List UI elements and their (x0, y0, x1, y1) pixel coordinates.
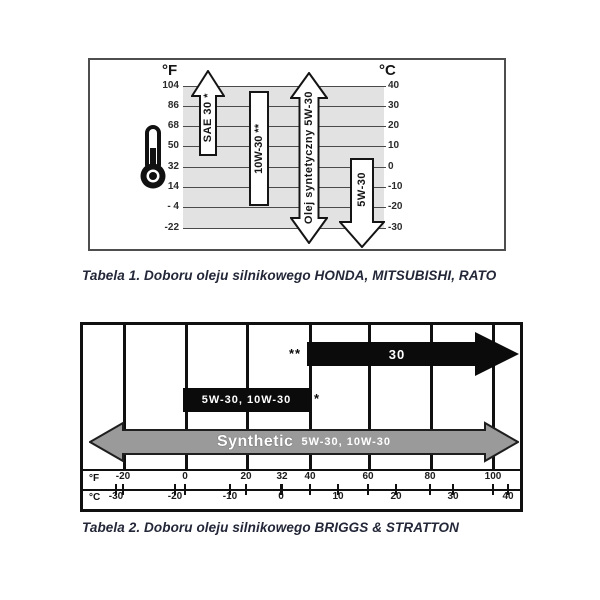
fahrenheit-tick-label: -20 (109, 471, 137, 482)
sae30-range-arrow: 30 (307, 331, 520, 377)
celsius-tick-label: 40 (388, 80, 422, 91)
document-page: 1048668503214- 4-22 403020100-10-20-30 °… (0, 0, 600, 600)
fahrenheit-tick-label: 100 (479, 471, 507, 482)
celsius-tick-label: 10 (388, 140, 422, 151)
tabela1-caption: Tabela 1. Doboru oleju silnikowego HONDA… (82, 268, 496, 283)
tick-mark (507, 484, 509, 495)
fahrenheit-tick-label: 20 (232, 471, 260, 482)
asterisk-note: * (314, 391, 320, 406)
synthetic-grades: 5W-30, 10W-30 (301, 436, 391, 448)
fahrenheit-axis-label: °F (162, 62, 177, 79)
tick-mark (367, 484, 369, 495)
5w30-10w30-bar: 5W-30, 10W-30 (183, 388, 310, 412)
synthetic-5w30-arrow-label: Olej syntetyczny 5W-30 (290, 72, 328, 244)
10w30-bar: 10W-30 ** (249, 91, 269, 206)
fahrenheit-tick-label: 104 (146, 80, 179, 91)
5w30-10w30-bar-label: 5W-30, 10W-30 (202, 394, 292, 406)
celsius-tick-label: -20 (388, 201, 422, 212)
tick-mark (184, 484, 186, 495)
celsius-tick-label: -10 (388, 181, 422, 192)
fahrenheit-tick-label: 80 (416, 471, 444, 482)
tabela2-caption: Tabela 2. Doboru oleju silnikowego BRIGG… (82, 520, 459, 535)
celsius-tick-label: 20 (388, 120, 422, 131)
fahrenheit-tick-label: 0 (171, 471, 199, 482)
synthetic-range-arrow: Synthetic 5W-30, 10W-30 (89, 421, 519, 463)
sae30-arrow-label: SAE 30 * (191, 80, 225, 156)
fahrenheit-tick-label: - 4 (146, 201, 179, 212)
tick-mark (395, 484, 397, 495)
sae30-range-label: 30 (307, 341, 487, 367)
tabela1-figure: 1048668503214- 4-22 403020100-10-20-30 °… (88, 58, 506, 251)
tick-mark (174, 484, 176, 495)
fahrenheit-tick-label: 86 (146, 100, 179, 111)
celsius-tick-label: 30 (388, 100, 422, 111)
thermometer-icon (138, 124, 168, 190)
fahrenheit-tick-label: 32 (268, 471, 296, 482)
tick-mark (122, 484, 124, 495)
fahrenheit-tick-label: 40 (296, 471, 324, 482)
celsius-axis-label: °C (379, 62, 396, 79)
celsius-tick-label: 0 (388, 161, 422, 172)
tick-mark (245, 484, 247, 495)
tick-mark (452, 484, 454, 495)
tick-mark (280, 484, 282, 495)
fahrenheit-scale-label: °F (89, 473, 99, 484)
fahrenheit-tick-label: 60 (354, 471, 382, 482)
tick-mark (492, 484, 494, 495)
5w30-arrow-label: 5W-30 (339, 158, 385, 220)
celsius-tick-label: -30 (388, 222, 422, 233)
tick-mark (337, 484, 339, 495)
double-asterisk-note: ** (289, 346, 301, 361)
tick-mark (229, 484, 231, 495)
synthetic-range-label: Synthetic 5W-30, 10W-30 (123, 430, 485, 454)
celsius-scale-label: °C (89, 492, 100, 503)
tick-mark (115, 484, 117, 495)
fahrenheit-tick-label: -22 (146, 222, 179, 233)
tick-mark (429, 484, 431, 495)
synthetic-word: Synthetic (217, 433, 294, 451)
tick-mark (309, 484, 311, 495)
tabela2-figure: °F °C -2002032406080100 -30-20-100102030… (80, 322, 523, 512)
